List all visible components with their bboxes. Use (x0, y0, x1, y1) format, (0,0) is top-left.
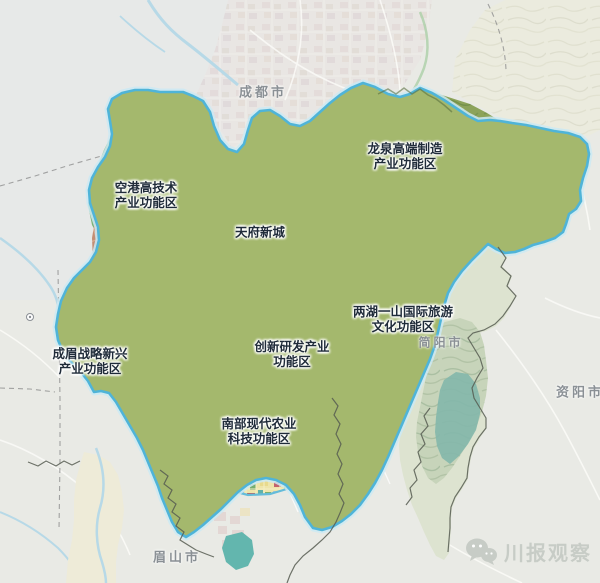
town-symbol (27, 314, 34, 321)
watermark: 川报观察 (464, 536, 592, 566)
wechat-icon (464, 536, 498, 566)
watermark-text: 川报观察 (504, 537, 592, 566)
planning-map: 成都市 简阳市 资阳市 眉山市 空港高技术 产业功能区 龙泉高端制造 产业功能区… (0, 0, 600, 583)
map-canvas (0, 0, 600, 583)
